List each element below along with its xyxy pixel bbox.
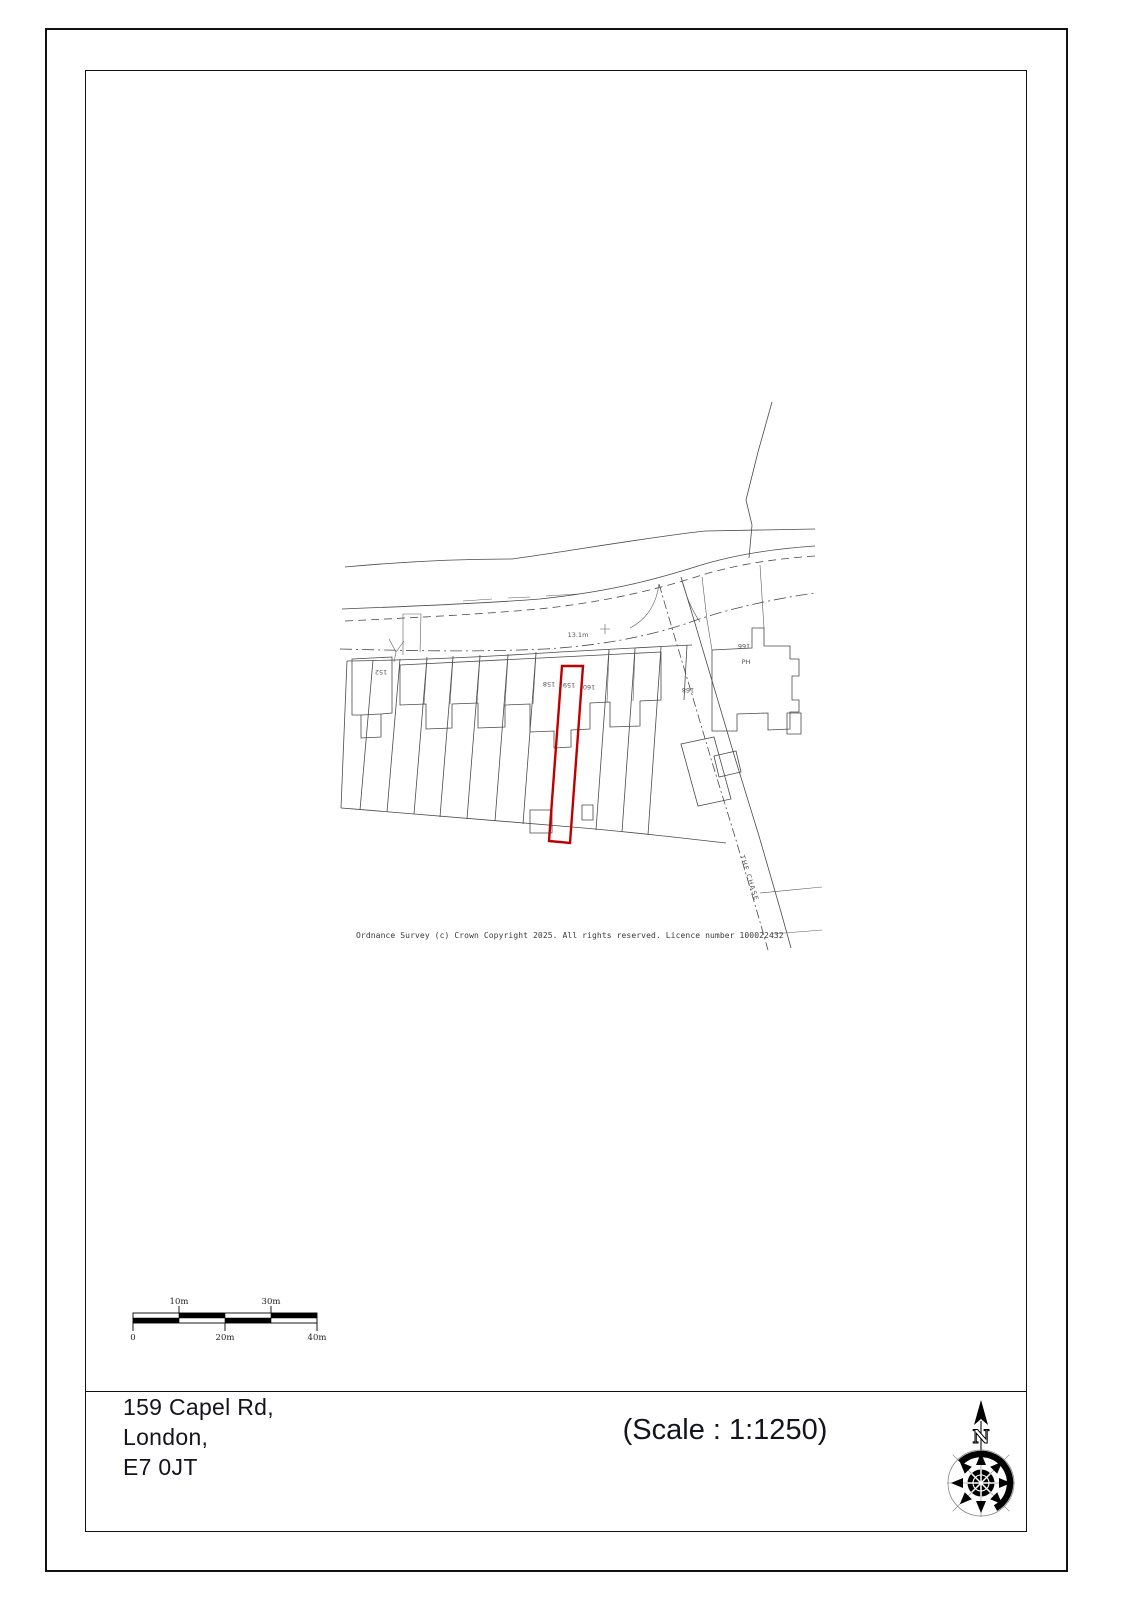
map-label-159: 159 (563, 681, 575, 689)
compass-rose: N (925, 1395, 1035, 1525)
map-label-166: 166 (738, 642, 750, 650)
scale-bar-label-10m: 10m (170, 1297, 189, 1307)
map-label-street-name: THE CHASE (738, 853, 761, 902)
pub-plot-boundaries (702, 565, 764, 650)
map-label-158: 158 (543, 680, 555, 688)
site-address: 159 Capel Rd, London, E7 0JT (123, 1392, 274, 1482)
road-edge-south (342, 546, 815, 609)
scale-text: (Scale : 1:1250) (560, 1414, 890, 1447)
road-line-north-branch (746, 402, 772, 558)
building-pub (712, 628, 799, 731)
north-label: N (972, 1426, 989, 1448)
road-edge-top (345, 529, 815, 567)
buildings (352, 565, 801, 833)
plot-dividers (341, 645, 687, 835)
scale-bar-label-0: 0 (130, 1333, 135, 1343)
map-label-pub: PH (742, 658, 751, 666)
scale-bar-label-20m: 20m (216, 1333, 235, 1343)
spot-height-cross (600, 624, 610, 634)
outbuilding-right (582, 805, 593, 820)
scale-bar: 10m 30m 0 20m 40m (115, 1293, 345, 1348)
scale-bar-segments (133, 1313, 317, 1323)
address-line-2: London, (123, 1422, 274, 1452)
plots-rear-line (341, 808, 726, 843)
chase-junction-kerbs (630, 577, 700, 628)
map-copyright: Ordnance Survey (c) Crown Copyright 2025… (356, 931, 784, 940)
compass-hub (968, 1470, 995, 1497)
os-map: 152 158 159 160 168 166 PH 13.1m THE CHA… (330, 390, 830, 960)
plot-boundaries (341, 645, 726, 843)
gate-marks (403, 614, 421, 655)
map-label-160: 160 (583, 683, 595, 691)
chase-right-edge (681, 577, 791, 948)
chase-side-boundaries (760, 887, 822, 934)
road-lines (340, 402, 815, 662)
buildings-terrace (400, 652, 661, 748)
highlight-plot-159 (549, 666, 583, 843)
scale-bar-label-40m: 40m (308, 1333, 327, 1343)
building-pub-annex (787, 713, 801, 734)
map-label-spot-height: 13.1m (568, 631, 589, 639)
address-line-3: E7 0JT (123, 1452, 274, 1482)
scale-bar-label-30m: 30m (262, 1297, 281, 1307)
address-line-1: 159 Capel Rd, (123, 1392, 274, 1422)
map-label-168: 168 (682, 686, 694, 694)
kerb-dashes (463, 594, 578, 601)
the-chase-road (630, 577, 822, 950)
road-centreline-dashed (345, 556, 815, 621)
map-label-152: 152 (375, 668, 387, 676)
